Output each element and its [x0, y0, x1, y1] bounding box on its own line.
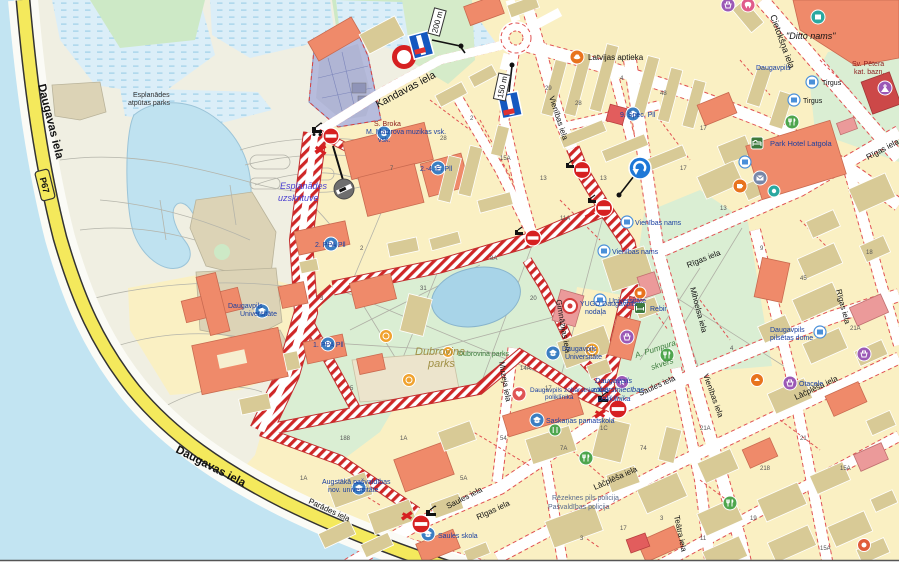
svg-text:5A: 5A: [460, 476, 467, 482]
svg-text:2. PPA Pll: 2. PPA Pll: [315, 242, 346, 249]
svg-text:28: 28: [575, 101, 582, 107]
svg-text:M. Maizrova muzikas vsk.: M. Maizrova muzikas vsk.: [366, 129, 446, 136]
svg-text:17: 17: [680, 166, 687, 172]
svg-text:Sv. Pētera: Sv. Pētera: [852, 61, 884, 68]
svg-text:Vienības nams: Vienības nams: [612, 249, 659, 256]
svg-text:Vienības nams: Vienības nams: [635, 220, 682, 227]
svg-text:Esplanādes: Esplanādes: [133, 92, 170, 99]
svg-text:8A: 8A: [490, 256, 497, 262]
svg-text:"Ditto nams": "Ditto nams": [786, 31, 836, 41]
svg-text:Park Hotel Latgola: Park Hotel Latgola: [770, 139, 833, 148]
svg-text:Esplanādes: Esplanādes: [280, 181, 328, 191]
svg-text:17: 17: [620, 526, 627, 532]
svg-text:13: 13: [600, 176, 607, 182]
svg-text:9. Špec. Pll: 9. Špec. Pll: [620, 110, 656, 119]
svg-text:74: 74: [640, 446, 647, 452]
svg-text:29: 29: [545, 86, 552, 92]
svg-text:1C: 1C: [600, 426, 608, 432]
svg-text:21: 21: [800, 436, 807, 442]
svg-text:48: 48: [660, 91, 667, 97]
svg-text:17: 17: [700, 126, 707, 132]
svg-text:poliklīnika: poliklīnika: [545, 394, 574, 401]
svg-text:Tirgus: Tirgus: [803, 98, 823, 105]
svg-text:31: 31: [420, 286, 427, 292]
svg-text:188: 188: [340, 436, 351, 442]
svg-text:vsk.: vsk.: [378, 137, 391, 144]
svg-text:parks: parks: [427, 358, 455, 370]
svg-text:Rebir: Rebir: [650, 306, 667, 313]
svg-text:1A: 1A: [400, 436, 407, 442]
svg-text:1A: 1A: [300, 476, 307, 482]
svg-text:11A: 11A: [560, 216, 570, 222]
svg-text:15A: 15A: [840, 466, 851, 472]
svg-text:Tirgus: Tirgus: [822, 80, 842, 87]
svg-text:Augstākā pašvaldības: Augstākā pašvaldības: [322, 479, 391, 486]
svg-text:Daugavpils: Daugavpils: [756, 65, 791, 72]
svg-text:Daugavpils: Daugavpils: [595, 376, 632, 385]
svg-text:14A: 14A: [520, 366, 531, 372]
svg-text:Latvijas aptieka: Latvijas aptieka: [588, 53, 644, 62]
svg-text:45: 45: [800, 276, 807, 282]
svg-text:Pašvaldības policija: Pašvaldības policija: [548, 504, 610, 511]
svg-text:kat. bazn.: kat. bazn.: [854, 69, 884, 76]
svg-text:13: 13: [540, 176, 547, 182]
svg-text:Universitāte: Universitāte: [565, 354, 602, 361]
svg-text:15A: 15A: [500, 156, 511, 162]
svg-text:Saskaņas pamatskola: Saskaņas pamatskola: [546, 418, 615, 425]
svg-text:19: 19: [750, 516, 757, 522]
svg-text:Saules skola: Saules skola: [438, 533, 478, 540]
svg-text:21A: 21A: [700, 426, 711, 432]
svg-text:20: 20: [530, 296, 537, 302]
svg-text:15A: 15A: [820, 546, 831, 552]
svg-text:Daugavpils: Daugavpils: [228, 303, 263, 310]
svg-text:Dubrovina parks: Dubrovina parks: [458, 351, 509, 358]
svg-text:uzskrituve: uzskrituve: [278, 193, 319, 203]
svg-text:S. Broka: S. Broka: [374, 121, 401, 128]
svg-text:2.-4. E. Pll: 2.-4. E. Pll: [420, 166, 453, 173]
svg-text:21A: 21A: [850, 326, 861, 332]
svg-text:Daugavpils: Daugavpils: [770, 327, 805, 334]
svg-text:11: 11: [700, 536, 707, 542]
svg-text:13: 13: [720, 206, 727, 212]
svg-text:Universitāte: Universitāte: [240, 311, 277, 318]
svg-text:54: 54: [500, 436, 507, 442]
svg-text:28: 28: [440, 136, 447, 142]
svg-text:Daugavpils zobārstniecības: Daugavpils zobārstniecības: [530, 387, 610, 394]
svg-text:1. PPA Pll: 1. PPA Pll: [313, 342, 344, 349]
svg-text:pilsētas dome: pilsētas dome: [770, 335, 813, 342]
svg-text:218: 218: [760, 466, 771, 472]
svg-text:7A: 7A: [560, 446, 567, 452]
svg-text:18: 18: [866, 250, 873, 256]
svg-text:poliklīnika: poliklīnika: [597, 394, 631, 403]
svg-text:nov. universitāte: nov. universitāte: [328, 487, 379, 494]
svg-text:17: 17: [545, 386, 552, 392]
svg-text:nodaļa: nodaļa: [585, 309, 606, 316]
svg-text:Universitāte: Universitāte: [609, 298, 646, 305]
svg-text:atpūtas parks: atpūtas parks: [128, 100, 171, 107]
svg-text:Rēzeknes pils policija: Rēzeknes pils policija: [552, 495, 619, 502]
svg-text:Otacele: Otacele: [799, 381, 823, 388]
svg-text:Daugavpils: Daugavpils: [562, 346, 597, 353]
